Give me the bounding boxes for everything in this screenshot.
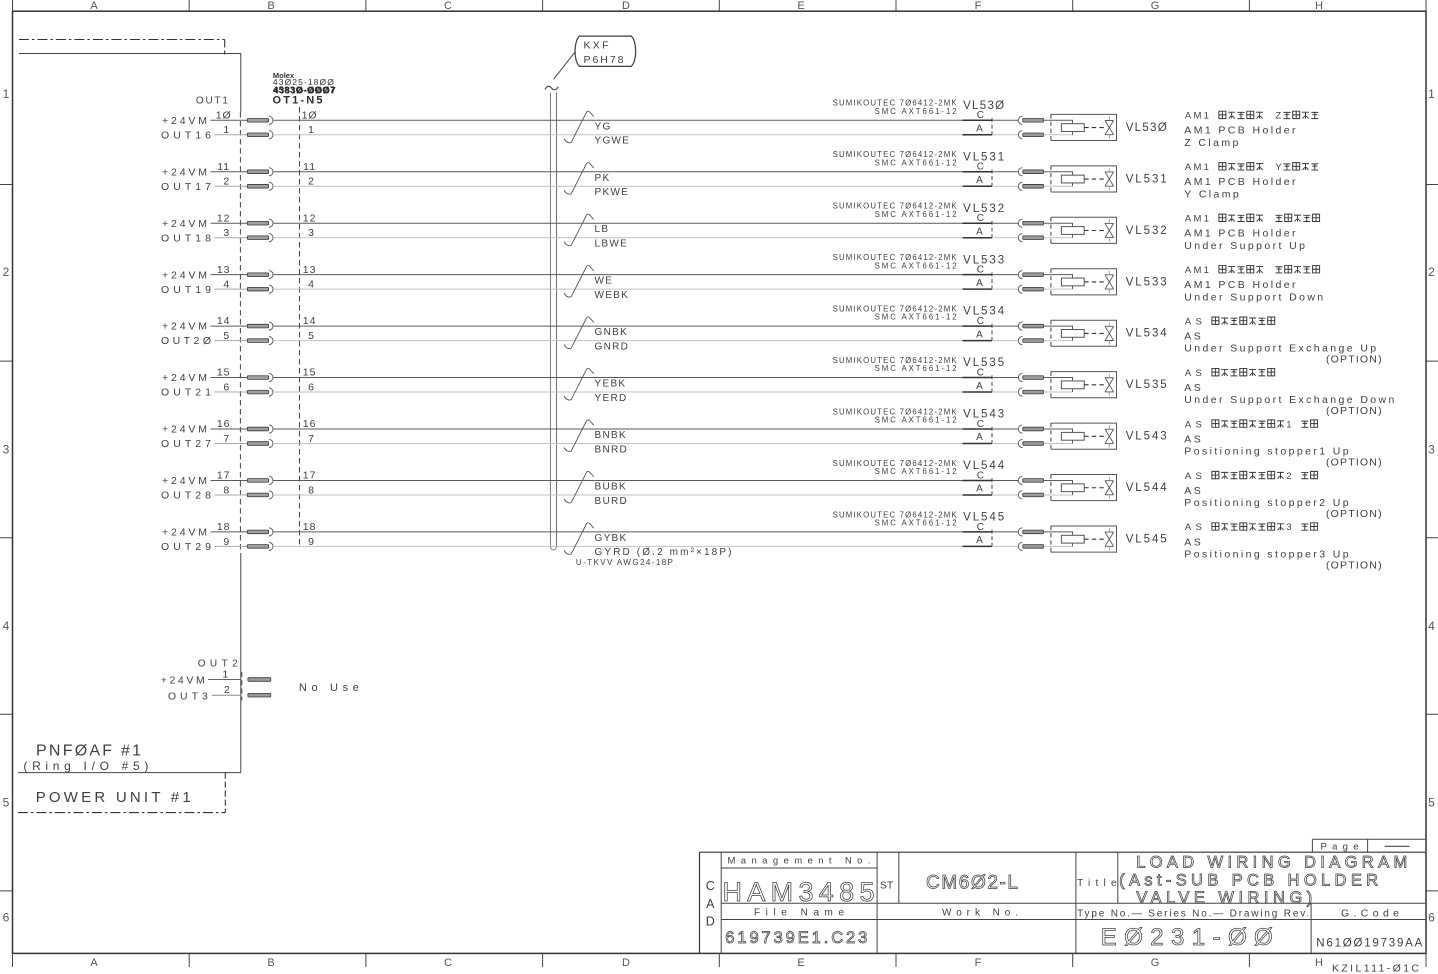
svg-text:2: 2 <box>3 265 10 279</box>
svg-text:Under Support Up: Under Support Up <box>1184 240 1307 252</box>
svg-text:YEBK: YEBK <box>595 379 627 390</box>
svg-text:LB: LB <box>595 224 610 235</box>
svg-text:F: F <box>975 0 982 12</box>
svg-text:B: B <box>267 0 274 12</box>
svg-text:A: A <box>976 226 983 237</box>
svg-text:2: 2 <box>1428 265 1435 279</box>
svg-text:PK: PK <box>595 173 611 184</box>
svg-text:16: 16 <box>217 418 231 430</box>
svg-text:(OPTION): (OPTION) <box>1326 354 1383 366</box>
svg-text:PNFØAF #1: PNFØAF #1 <box>36 743 141 760</box>
svg-text:C: C <box>444 0 452 12</box>
svg-text:ST: ST <box>880 879 894 891</box>
svg-text:N61ØØ19739AA: N61ØØ19739AA <box>1316 938 1422 950</box>
svg-text:1Ø: 1Ø <box>302 109 318 121</box>
svg-text:14: 14 <box>303 315 317 327</box>
svg-text:C: C <box>977 367 984 378</box>
svg-text:U-TKVV AWG24-18P: U-TKVV AWG24-18P <box>576 558 673 567</box>
svg-text:A: A <box>976 329 983 340</box>
svg-text:GYBK: GYBK <box>595 533 628 544</box>
svg-text:OUT2Ø: OUT2Ø <box>161 335 211 347</box>
svg-text:2: 2 <box>1286 471 1291 482</box>
svg-text:AM1 PCB Holder: AM1 PCB Holder <box>1184 279 1298 291</box>
svg-text:3: 3 <box>1286 522 1291 533</box>
svg-text:AM1: AM1 <box>1185 111 1209 122</box>
svg-text:1: 1 <box>222 669 228 681</box>
svg-text:H: H <box>1315 957 1323 969</box>
svg-text:C: C <box>977 110 984 121</box>
svg-text:(OPTION): (OPTION) <box>1326 559 1383 571</box>
svg-text:AM1: AM1 <box>1185 162 1209 173</box>
svg-text:(OPTION): (OPTION) <box>1326 508 1383 520</box>
svg-text:VL531: VL531 <box>1126 173 1167 185</box>
svg-text:LBWE: LBWE <box>595 239 629 250</box>
svg-text:VL532: VL532 <box>1126 225 1167 237</box>
svg-text:13: 13 <box>217 264 231 276</box>
svg-text:H: H <box>1315 0 1323 12</box>
svg-text:AM1 PCB Holder: AM1 PCB Holder <box>1184 125 1298 137</box>
svg-text:A: A <box>976 535 983 546</box>
svg-text:LOAD WIRING DIAGRAM: LOAD WIRING DIAGRAM <box>1136 854 1407 872</box>
svg-text:17: 17 <box>217 470 231 482</box>
svg-text:AM1 PCB Holder: AM1 PCB Holder <box>1184 228 1298 240</box>
svg-text:AM1: AM1 <box>1185 214 1209 225</box>
svg-text:6: 6 <box>3 911 10 925</box>
svg-text:Y: Y <box>1275 162 1282 173</box>
svg-text:VL543: VL543 <box>1126 431 1167 443</box>
svg-text:GNRD: GNRD <box>595 341 630 352</box>
svg-text:17: 17 <box>303 470 317 482</box>
svg-text:C: C <box>444 957 452 969</box>
svg-text:12: 12 <box>217 212 231 224</box>
svg-text:BURD: BURD <box>595 496 629 507</box>
svg-text:D: D <box>622 0 630 12</box>
svg-text:C: C <box>977 522 984 533</box>
svg-text:D: D <box>622 957 630 969</box>
svg-text:GNBK: GNBK <box>595 327 629 338</box>
svg-text:C: C <box>706 879 715 893</box>
svg-text:YERD: YERD <box>595 393 628 404</box>
svg-text:C: C <box>977 470 984 481</box>
svg-text:3: 3 <box>1428 443 1435 457</box>
svg-text:G: G <box>1151 0 1160 12</box>
svg-text:E: E <box>797 0 804 12</box>
svg-text:A: A <box>976 175 983 186</box>
svg-text:A: A <box>976 484 983 495</box>
svg-text:KXF: KXF <box>584 39 609 51</box>
svg-text:YG: YG <box>595 121 612 132</box>
svg-text:12: 12 <box>303 212 317 224</box>
svg-text:A: A <box>976 124 983 135</box>
svg-text:D: D <box>706 915 715 929</box>
svg-text:18: 18 <box>303 521 317 533</box>
svg-text:1: 1 <box>1428 87 1435 101</box>
svg-text:C: C <box>977 162 984 173</box>
svg-text:1Ø: 1Ø <box>216 109 232 121</box>
svg-text:3: 3 <box>3 443 10 457</box>
svg-text:A: A <box>976 432 983 443</box>
svg-text:Z: Z <box>1275 111 1281 122</box>
svg-text:AS: AS <box>1184 331 1203 343</box>
svg-text:11: 11 <box>303 161 316 173</box>
svg-text:(OPTION): (OPTION) <box>1326 405 1383 417</box>
svg-text:OUT1: OUT1 <box>196 96 228 107</box>
svg-text:VL53Ø: VL53Ø <box>1126 122 1167 134</box>
svg-text:5: 5 <box>3 796 10 810</box>
svg-text:VL535: VL535 <box>1126 379 1167 391</box>
svg-text:AS: AS <box>1184 485 1203 497</box>
svg-text:1: 1 <box>3 87 10 101</box>
svg-text:BUBK: BUBK <box>595 481 627 492</box>
svg-text:A: A <box>976 381 983 392</box>
svg-text:VL544: VL544 <box>1126 482 1168 494</box>
svg-text:AS: AS <box>1184 536 1203 548</box>
svg-text:C: C <box>977 213 984 224</box>
svg-text:15: 15 <box>217 367 231 379</box>
svg-text:16: 16 <box>303 418 317 430</box>
svg-text:A: A <box>90 957 98 969</box>
svg-text:Under Support Down: Under Support Down <box>1184 291 1325 303</box>
svg-text:15: 15 <box>303 367 317 379</box>
svg-text:AM1: AM1 <box>1185 265 1209 276</box>
svg-text:VL534: VL534 <box>1126 328 1168 340</box>
svg-text:AS: AS <box>1184 382 1203 394</box>
svg-text:A: A <box>976 278 983 289</box>
svg-text:AM1 PCB Holder: AM1 PCB Holder <box>1184 176 1298 188</box>
svg-text:BNRD: BNRD <box>595 444 629 455</box>
svg-text:4: 4 <box>3 619 10 633</box>
svg-text:G: G <box>1151 957 1160 969</box>
svg-text:VL533: VL533 <box>1126 276 1167 288</box>
svg-text:Type No.— Series No.— Drawing: Type No.— Series No.— Drawing Rev. <box>1077 909 1309 920</box>
svg-text:A: A <box>90 0 98 12</box>
svg-text:14: 14 <box>217 315 231 327</box>
svg-text:1: 1 <box>1286 419 1291 430</box>
svg-text:6: 6 <box>1428 911 1435 925</box>
svg-text:E: E <box>797 957 804 969</box>
svg-text:Z Clamp: Z Clamp <box>1184 137 1240 149</box>
svg-text:P6H78: P6H78 <box>584 54 624 66</box>
svg-text:B: B <box>267 957 274 969</box>
svg-text:C: C <box>977 419 984 430</box>
svg-text:2: 2 <box>224 684 230 696</box>
svg-text:VL545: VL545 <box>1126 534 1167 546</box>
svg-text:C: C <box>977 316 984 327</box>
svg-text:A: A <box>706 897 715 911</box>
svg-text:(OPTION): (OPTION) <box>1326 456 1383 468</box>
svg-text:11: 11 <box>217 161 230 173</box>
svg-text:C: C <box>977 265 984 276</box>
svg-text:PKWE: PKWE <box>595 187 630 198</box>
svg-text:WE: WE <box>595 276 614 287</box>
svg-text:F: F <box>975 957 982 969</box>
svg-text:5: 5 <box>1428 796 1435 810</box>
svg-text:(Ast-SUB PCB HOLDER: (Ast-SUB PCB HOLDER <box>1119 872 1378 890</box>
svg-text:AS: AS <box>1184 433 1203 445</box>
svg-text:4: 4 <box>1428 619 1435 633</box>
svg-text:KZIL111-Ø1C: KZIL111-Ø1C <box>1332 963 1419 974</box>
svg-text:13: 13 <box>303 264 317 276</box>
svg-text:Y Clamp: Y Clamp <box>1184 188 1241 200</box>
svg-text:BNBK: BNBK <box>595 430 627 441</box>
svg-text:18: 18 <box>217 521 231 533</box>
svg-text:YGWE: YGWE <box>595 136 631 147</box>
svg-text:WEBK: WEBK <box>595 290 630 301</box>
